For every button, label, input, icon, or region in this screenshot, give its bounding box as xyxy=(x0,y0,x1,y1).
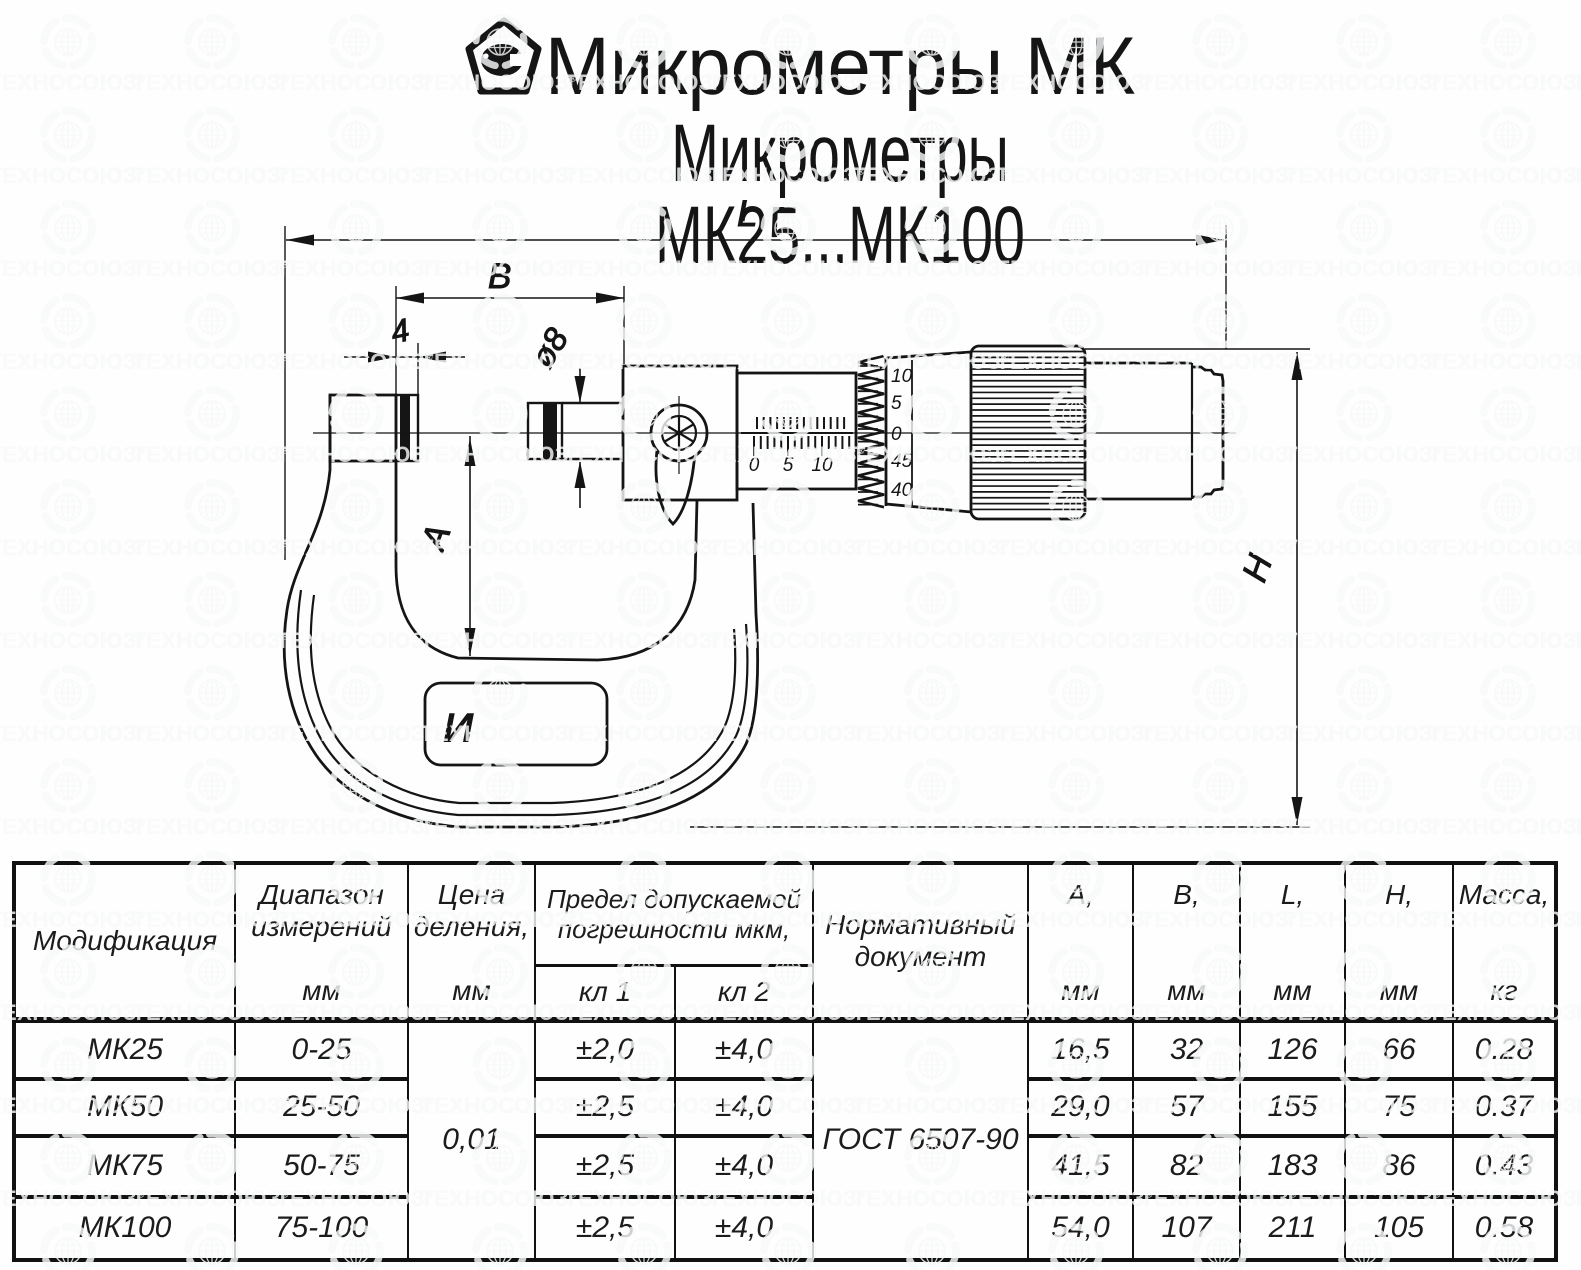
page-subtitle: Микрометры МК25...МК100 xyxy=(490,113,1190,277)
watermark-text: ТЕХНОСОЮЗ® xyxy=(1572,1186,1581,1212)
table-cell: ±4,0 xyxy=(676,1081,814,1138)
table-cell: ±4,0 xyxy=(676,1199,814,1258)
table-cell: 126 xyxy=(1241,1023,1346,1081)
watermark-text: ТЕХНОСОЮЗ® xyxy=(1572,1093,1581,1119)
table-cell: ±2,0 xyxy=(536,1023,676,1081)
page-title-text: Микрометры МК xyxy=(545,21,1135,112)
col-header-range-unit: мм xyxy=(302,975,340,1007)
cell-document-value: ГОСТ 6507-90 xyxy=(814,1023,1029,1258)
knurl-pattern xyxy=(973,352,1084,510)
dimension-frame-depth xyxy=(396,286,624,395)
table-cell: МК75 xyxy=(16,1138,236,1199)
table-cell: 41,5 xyxy=(1029,1138,1134,1199)
table-cell: МК25 xyxy=(16,1023,236,1081)
table-cell: 0.43 xyxy=(1454,1138,1554,1199)
col-header-H: Н,мм xyxy=(1346,865,1454,1023)
heat-shield-line-2 xyxy=(311,595,735,803)
scale-number: 5 xyxy=(783,455,794,476)
table-cell: МК50 xyxy=(16,1081,236,1138)
spindle xyxy=(528,403,623,459)
dim-label-dia8: ø8 xyxy=(524,321,576,374)
col-header-range: Диапазонизмерений мм xyxy=(236,865,409,1023)
table-cell: ±4,0 xyxy=(676,1023,814,1081)
dim-label-H: H xyxy=(1235,549,1281,587)
col-header-class1: кл 1 xyxy=(536,967,676,1023)
cell-division-value: 0,01 xyxy=(409,1023,536,1258)
table-cell: 75 xyxy=(1346,1081,1454,1138)
table-cell: 32 xyxy=(1134,1023,1241,1081)
table-cell: 50-75 xyxy=(236,1138,409,1199)
table-cell: МК100 xyxy=(16,1199,236,1258)
dimension-throat-depth xyxy=(465,436,476,656)
table-cell: 29,0 xyxy=(1029,1081,1134,1138)
scale-number: 40 xyxy=(891,480,913,501)
table-cell: 82 xyxy=(1134,1138,1241,1199)
dimension-anvil-width xyxy=(344,343,465,395)
anvil xyxy=(330,395,418,461)
watermark-text: ТЕХНОСОЮЗ® xyxy=(1572,1093,1581,1119)
table-cell: 54,0 xyxy=(1029,1199,1134,1258)
watermark-text: ТЕХНОСОЮЗ® xyxy=(1572,1000,1581,1026)
table-cell: ±4,0 xyxy=(676,1138,814,1199)
table-cell: 183 xyxy=(1241,1138,1346,1199)
watermark-text: ТЕХНОСОЮЗ® xyxy=(1572,1000,1581,1026)
page-title: Микрометры МК xyxy=(365,26,1315,108)
col-header-division-unit: мм xyxy=(452,975,490,1007)
frame-plate-logo: И xyxy=(443,704,474,751)
table-cell: 16,5 xyxy=(1029,1023,1134,1081)
page-subtitle-text: Микрометры МК25...МК100 xyxy=(655,108,1025,281)
table-cell: 86 xyxy=(1346,1138,1454,1199)
table-cell: ±2,5 xyxy=(536,1081,676,1138)
scale-number: 10 xyxy=(811,455,833,476)
dimension-spindle-diameter xyxy=(575,368,586,508)
col-header-error-limit: Предел допускаемойпогрешности мкм, xyxy=(536,865,814,967)
sleeve-scale-ticks xyxy=(754,417,849,456)
scale-number: 45 xyxy=(891,451,913,472)
table-cell: 25-50 xyxy=(236,1081,409,1138)
table-cell: 66 xyxy=(1346,1023,1454,1081)
specification-table: Модификация Диапазонизмерений мм Ценадел… xyxy=(12,861,1558,1262)
table-cell: ±2,5 xyxy=(536,1138,676,1199)
scale-number: 5 xyxy=(891,393,902,414)
table-cell: 0.37 xyxy=(1454,1081,1554,1138)
col-header-L: L,мм xyxy=(1241,865,1346,1023)
col-header-modification: Модификация xyxy=(16,865,236,1023)
scale-number: 10 xyxy=(891,366,913,387)
thimble xyxy=(858,352,971,512)
col-header-A: А,мм xyxy=(1029,865,1134,1023)
watermark-text: ТЕХНОСОЮЗ® xyxy=(1572,907,1581,933)
table-cell: 105 xyxy=(1346,1199,1454,1258)
datasheet-page: ТЕХНОСОЮЗ® ТЕХНОСОЮЗ® ТЕХНОСОЮЗ® xyxy=(0,0,1581,1270)
col-header-document: Нормативныйдокумент xyxy=(814,865,1029,1023)
col-header-mass: Масса,кг xyxy=(1454,865,1554,1023)
scale-number: 0 xyxy=(891,424,902,445)
table-cell: 0.58 xyxy=(1454,1199,1554,1258)
heat-shield-line-1 xyxy=(297,590,747,815)
table-cell: ±2,5 xyxy=(536,1199,676,1258)
dim-label-A: A xyxy=(413,519,458,556)
watermark-text: ТЕХНОСОЮЗ® xyxy=(1572,907,1581,933)
col-header-division: Ценаделения, мм xyxy=(409,865,536,1023)
table-cell: 211 xyxy=(1241,1199,1346,1258)
end-cap xyxy=(1085,363,1223,499)
col-header-B: В,мм xyxy=(1134,865,1241,1023)
table-cell: 57 xyxy=(1134,1081,1241,1138)
watermark-text: ТЕХНОСОЮЗ® xyxy=(1572,1186,1581,1212)
table-cell: 0-25 xyxy=(236,1023,409,1081)
scale-number: 0 xyxy=(749,455,760,476)
table-cell: 155 xyxy=(1241,1081,1346,1138)
col-header-class2: кл 2 xyxy=(676,967,814,1023)
table-cell: 75-100 xyxy=(236,1199,409,1258)
dim-label-4: 4 xyxy=(388,311,413,350)
table-cell: 107 xyxy=(1134,1199,1241,1258)
table-cell: 0.28 xyxy=(1454,1023,1554,1081)
